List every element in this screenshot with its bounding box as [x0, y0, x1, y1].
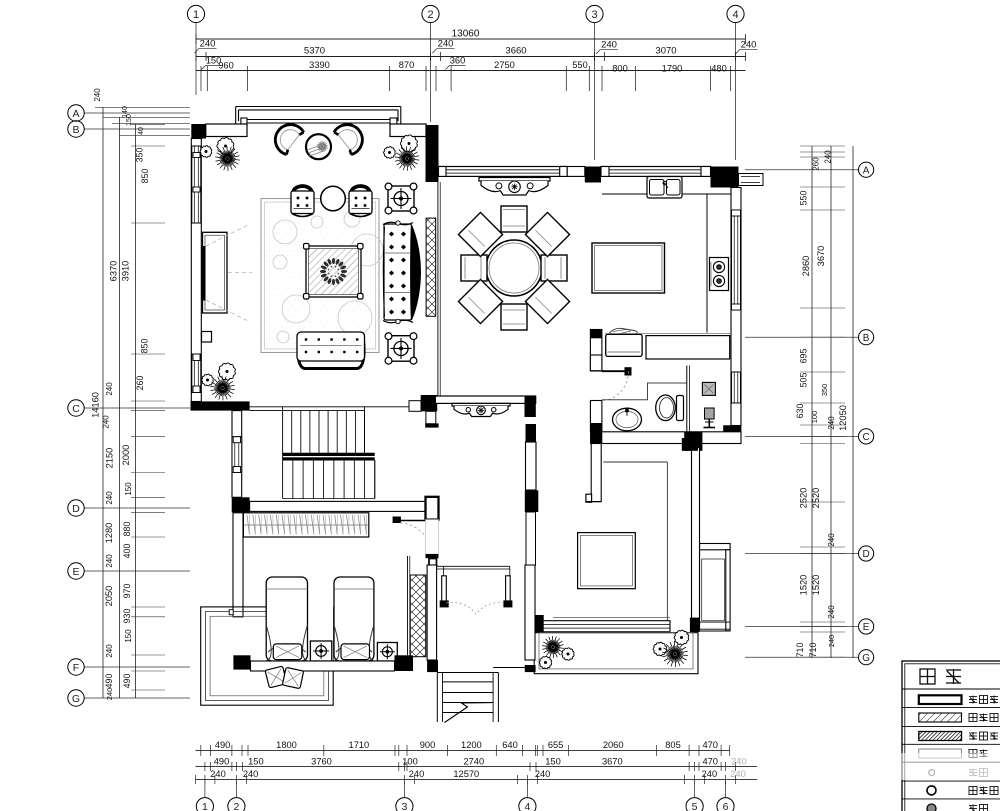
svg-text:3760: 3760: [311, 757, 332, 767]
svg-text:B: B: [863, 333, 870, 344]
svg-text:2860: 2860: [801, 256, 811, 277]
svg-text:240: 240: [741, 40, 757, 51]
svg-text:240: 240: [243, 769, 259, 779]
svg-text:900: 900: [420, 740, 436, 750]
svg-text:2520: 2520: [811, 488, 821, 509]
svg-text:150: 150: [248, 757, 264, 767]
svg-text:G: G: [862, 653, 870, 664]
svg-text:970: 970: [122, 584, 132, 599]
svg-text:240: 240: [105, 382, 114, 396]
svg-text:260: 260: [135, 376, 145, 391]
svg-text:490: 490: [215, 740, 231, 750]
svg-text:850: 850: [140, 339, 150, 354]
svg-text:3070: 3070: [655, 46, 676, 57]
svg-text:150: 150: [124, 629, 133, 643]
svg-text:930: 930: [122, 609, 132, 624]
svg-text:2060: 2060: [603, 740, 624, 750]
svg-text:40: 40: [138, 127, 145, 135]
svg-text:505: 505: [799, 373, 809, 388]
svg-text:240: 240: [105, 554, 114, 568]
svg-text:4: 4: [524, 801, 530, 811]
svg-text:805: 805: [665, 740, 681, 750]
svg-text:695: 695: [799, 349, 809, 364]
svg-text:13060: 13060: [452, 29, 480, 40]
svg-text:100: 100: [402, 757, 418, 767]
svg-text:2520: 2520: [799, 488, 809, 509]
svg-text:G: G: [72, 693, 80, 705]
svg-text:14160: 14160: [91, 392, 101, 418]
svg-text:240: 240: [409, 769, 425, 779]
svg-text:490: 490: [104, 674, 114, 689]
svg-text:350: 350: [820, 384, 829, 397]
svg-text:550: 550: [799, 191, 809, 206]
svg-text:5370: 5370: [304, 46, 325, 57]
svg-text:2: 2: [427, 9, 433, 21]
svg-text:2750: 2750: [494, 60, 515, 70]
svg-text:850: 850: [140, 169, 150, 184]
svg-text:470: 470: [702, 740, 718, 750]
svg-text:1520: 1520: [799, 575, 809, 596]
svg-text:12050: 12050: [838, 405, 848, 431]
svg-text:D: D: [862, 549, 869, 560]
svg-text:150: 150: [126, 114, 133, 126]
svg-text:12570: 12570: [453, 769, 479, 779]
svg-text:2: 2: [233, 801, 239, 811]
svg-text:3: 3: [591, 9, 597, 21]
svg-text:6370: 6370: [109, 261, 119, 282]
svg-text:1520: 1520: [811, 575, 821, 596]
svg-text:655: 655: [548, 740, 564, 750]
svg-text:490: 490: [214, 757, 230, 767]
svg-text:240: 240: [105, 491, 114, 505]
svg-text:2740: 2740: [463, 757, 484, 767]
svg-text:240: 240: [105, 644, 114, 658]
svg-text:3: 3: [401, 801, 407, 811]
svg-text:2150: 2150: [105, 448, 115, 469]
svg-text:490: 490: [122, 674, 132, 689]
svg-text:240: 240: [827, 533, 836, 547]
svg-text:1280: 1280: [104, 523, 114, 544]
svg-text:3670: 3670: [816, 246, 826, 267]
svg-text:470: 470: [702, 757, 718, 767]
svg-text:800: 800: [612, 63, 628, 73]
svg-text:4: 4: [732, 9, 738, 21]
svg-text:870: 870: [399, 60, 415, 70]
svg-text:240: 240: [601, 40, 617, 51]
svg-text:100: 100: [810, 411, 819, 424]
svg-text:5: 5: [692, 801, 698, 811]
svg-text:1790: 1790: [662, 63, 683, 73]
svg-text:400: 400: [122, 544, 132, 559]
svg-text:3910: 3910: [121, 261, 131, 282]
svg-text:350: 350: [135, 148, 145, 163]
svg-text:360: 360: [450, 56, 466, 66]
svg-text:1: 1: [193, 9, 199, 21]
svg-text:1200: 1200: [461, 740, 482, 750]
svg-text:240: 240: [102, 415, 111, 429]
svg-text:150: 150: [545, 757, 561, 767]
svg-text:240: 240: [210, 769, 226, 779]
svg-text:240: 240: [824, 150, 833, 164]
svg-text:E: E: [863, 622, 870, 633]
svg-text:A: A: [72, 108, 79, 120]
svg-text:240: 240: [730, 769, 746, 779]
svg-text:960: 960: [218, 60, 234, 70]
svg-text:150: 150: [124, 482, 133, 496]
svg-text:630: 630: [795, 404, 805, 419]
svg-text:710: 710: [808, 643, 818, 658]
svg-text:550: 550: [572, 60, 588, 70]
svg-text:A: A: [863, 165, 870, 176]
svg-text:C: C: [862, 432, 869, 443]
svg-text:240: 240: [535, 769, 551, 779]
svg-text:240: 240: [702, 769, 718, 779]
svg-text:3390: 3390: [309, 60, 330, 70]
svg-text:260: 260: [812, 157, 821, 171]
svg-text:1: 1: [202, 801, 208, 811]
svg-text:*: *: [737, 756, 742, 768]
svg-text:710: 710: [795, 643, 805, 658]
svg-text:D: D: [72, 503, 80, 515]
svg-text:3670: 3670: [602, 757, 623, 767]
svg-text:240: 240: [827, 635, 836, 648]
svg-text:240: 240: [93, 88, 102, 102]
svg-text:240: 240: [200, 39, 216, 50]
svg-text:2000: 2000: [121, 445, 131, 466]
svg-text:240: 240: [827, 605, 836, 619]
svg-text:240: 240: [827, 416, 836, 430]
svg-text:640: 640: [502, 740, 518, 750]
svg-text:B: B: [72, 124, 79, 136]
svg-text:E: E: [72, 566, 79, 578]
svg-text:240: 240: [438, 39, 454, 50]
svg-text:F: F: [73, 662, 79, 674]
svg-text:1710: 1710: [349, 740, 370, 750]
svg-text:6: 6: [723, 801, 729, 811]
svg-text:240: 240: [105, 688, 114, 701]
svg-text:2050: 2050: [104, 586, 114, 607]
svg-text:880: 880: [122, 522, 132, 537]
svg-text:480: 480: [711, 63, 727, 73]
svg-text:3660: 3660: [505, 46, 526, 57]
svg-text:1800: 1800: [276, 740, 297, 750]
svg-text:C: C: [72, 403, 80, 415]
